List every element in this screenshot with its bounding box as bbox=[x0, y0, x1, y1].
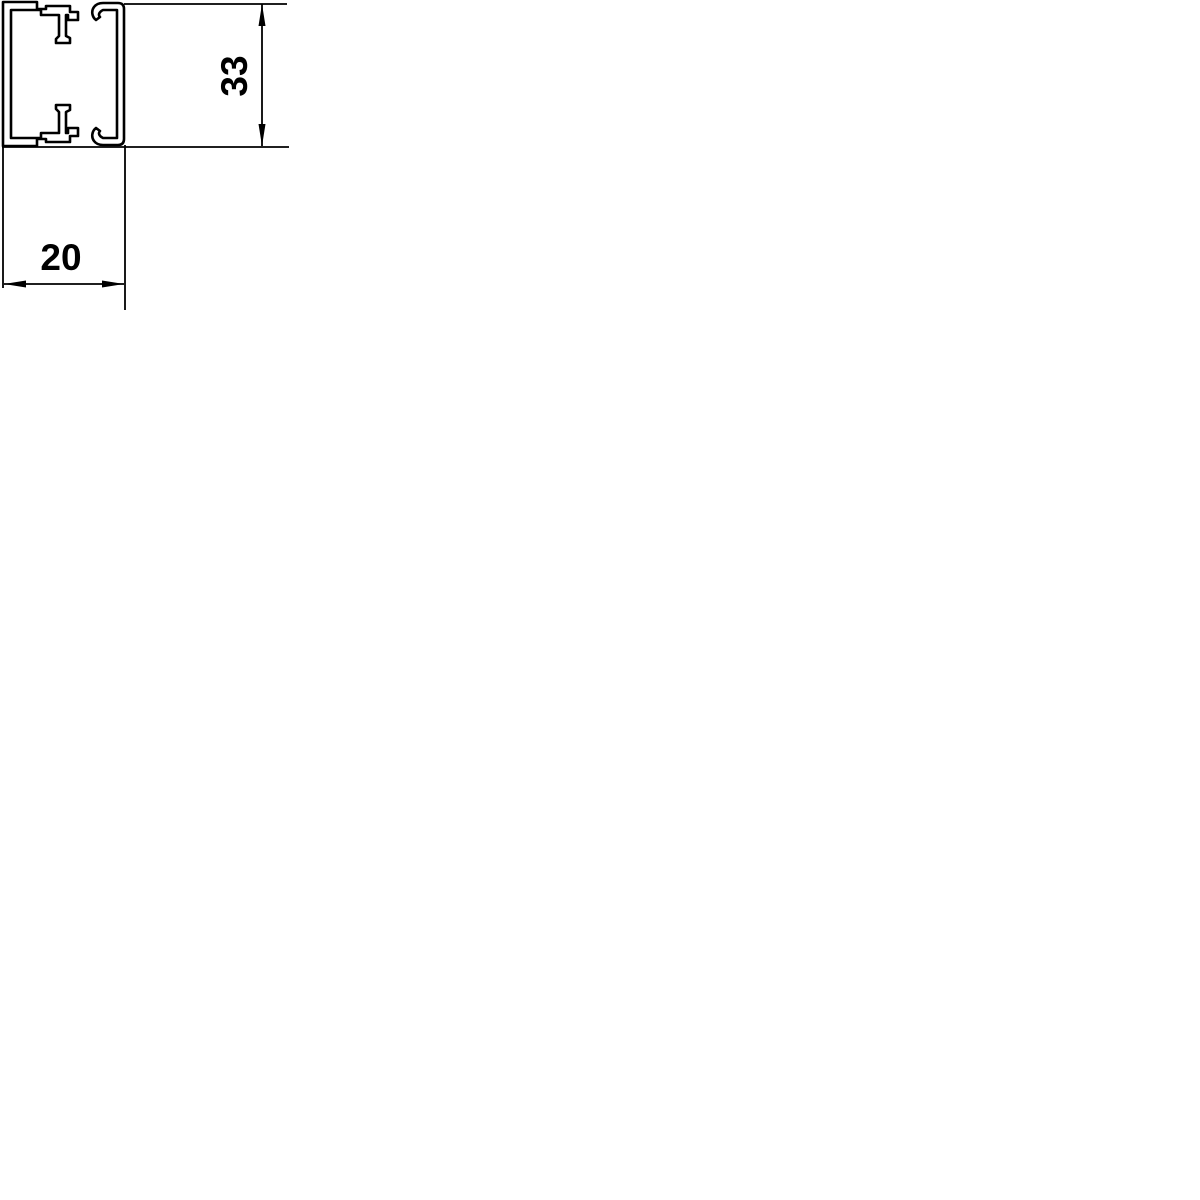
dimension-arrow-left-icon bbox=[4, 281, 26, 288]
trunking-cover-profile bbox=[92, 3, 124, 145]
drawing-canvas: 33 20 bbox=[0, 0, 1200, 1200]
dimension-arrow-down-icon bbox=[259, 124, 266, 146]
dimension-arrow-right-icon bbox=[102, 281, 124, 288]
height-dimension-label: 33 bbox=[214, 55, 255, 96]
technical-drawing: 33 20 bbox=[0, 0, 1200, 1200]
dimension-arrow-up-icon bbox=[259, 4, 266, 26]
width-dimension-label: 20 bbox=[40, 237, 81, 278]
trunking-base-profile bbox=[3, 2, 78, 146]
